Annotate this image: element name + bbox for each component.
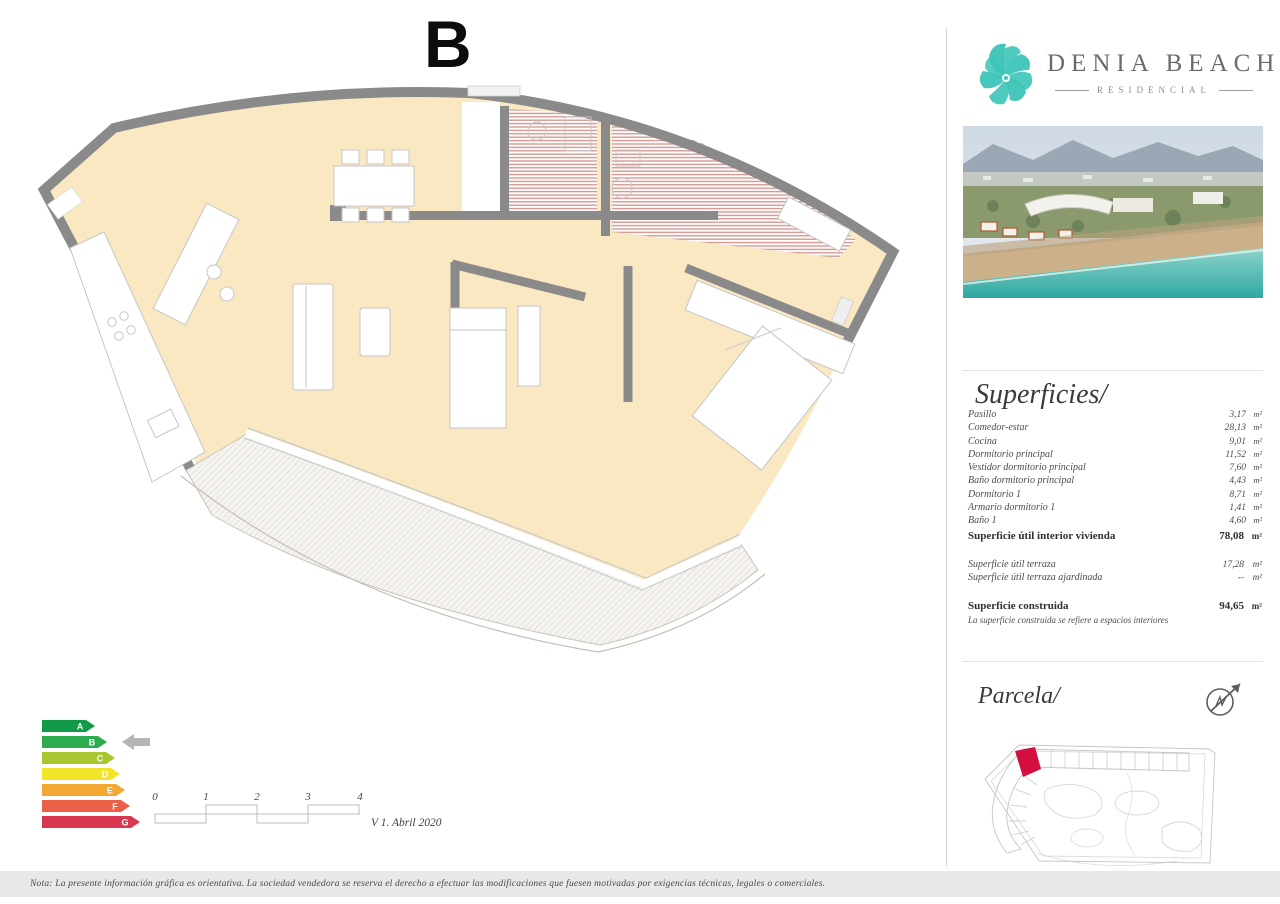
room-area: 11,52	[1212, 450, 1246, 460]
area-unit: m²	[1246, 462, 1262, 472]
north-arrow-icon	[1200, 676, 1248, 722]
section-rule	[962, 661, 1263, 662]
footer-note: Nota: La presente información gráfica es…	[30, 879, 825, 889]
room-area: 3,17	[1212, 410, 1246, 420]
dining-chair	[392, 208, 409, 222]
area-unit: m²	[1246, 489, 1262, 499]
area-totals: Superficie útil interior vivienda 78,08 …	[968, 530, 1262, 625]
room-area: 1,41	[1212, 503, 1246, 513]
room-area: 8,71	[1212, 490, 1246, 500]
grade-letter: C	[97, 754, 104, 764]
total-label: Superficie útil terraza ajardinada	[968, 572, 1204, 583]
room-label: Baño dormitorio principal	[968, 475, 1212, 486]
list-item: Dormitorio 18,71m²	[968, 489, 1262, 502]
scale-tick: 3	[304, 791, 311, 803]
superficies-heading: Superficies/	[975, 379, 1107, 411]
room-area: 7,60	[1212, 463, 1246, 473]
list-item: Cocina9,01m²	[968, 436, 1262, 449]
tagline-rule-left	[1055, 90, 1089, 91]
list-item: Vestidor dormitorio principal7,60m²	[968, 462, 1262, 475]
section-rule	[962, 370, 1263, 371]
area-unit: m²	[1244, 559, 1262, 569]
list-item: Baño 14,60m²	[968, 515, 1262, 528]
bed-2	[450, 308, 506, 428]
energy-grade-bars	[42, 720, 140, 828]
area-unit: m²	[1244, 572, 1262, 582]
scale-tick: 4	[357, 791, 363, 803]
grade-letter: E	[107, 786, 113, 796]
room-area: 4,43	[1212, 476, 1246, 486]
dining-chair	[392, 150, 409, 164]
dining-chair	[367, 208, 384, 222]
room-areas-list: Pasillo3,17m² Comedor-estar28,13m² Cocin…	[968, 409, 1262, 529]
brand-tagline: RESIDENCIAL	[1097, 85, 1211, 95]
list-item: Baño dormitorio principal4,43m²	[968, 475, 1262, 488]
total-construida-row: Superficie construida 94,65 m²	[968, 600, 1262, 612]
room-label: Dormitorio principal	[968, 449, 1212, 460]
area-unit: m²	[1244, 531, 1262, 541]
list-item: Dormitorio principal11,52m²	[968, 449, 1262, 462]
grade-letter: G	[121, 818, 128, 828]
sofa	[293, 284, 333, 390]
tagline-rule-right	[1219, 90, 1253, 91]
scale-tick: 2	[254, 791, 260, 803]
total-label: Superficie útil terraza	[968, 559, 1204, 570]
grade-letter: F	[112, 802, 118, 812]
floor-plan	[0, 0, 945, 680]
stool	[220, 287, 234, 301]
brand-header: DENIA BEACH RESIDENCIAL	[963, 36, 1265, 114]
area-unit: m²	[1246, 502, 1262, 512]
room-area: 28,13	[1212, 423, 1246, 433]
area-unit: m²	[1246, 436, 1262, 446]
list-item: Pasillo3,17m²	[968, 409, 1262, 422]
area-unit: m²	[1244, 601, 1262, 611]
panel-divider	[946, 28, 947, 866]
scale-bar	[155, 805, 360, 823]
total-label: Superficie útil interior vivienda	[968, 530, 1204, 542]
room-label: Dormitorio 1	[968, 489, 1212, 500]
total-value: 78,08	[1204, 530, 1244, 542]
room-label: Baño 1	[968, 515, 1212, 526]
dining-chair	[367, 150, 384, 164]
total-interior-row: Superficie útil interior vivienda 78,08 …	[968, 530, 1262, 542]
plan-version: V 1. Abril 2020	[371, 817, 442, 829]
construida-note: La superficie construida se refiere a es…	[968, 615, 1262, 625]
total-value: 94,65	[1204, 600, 1244, 612]
armchair	[360, 308, 390, 356]
scale-tick: 1	[203, 791, 209, 803]
footer-disclaimer-bar: Nota: La presente información gráfica es…	[0, 871, 1280, 897]
grade-letter: D	[102, 770, 109, 780]
total-ajardinada-row: Superficie útil terraza ajardinada -- m²	[968, 572, 1262, 583]
dining-chair	[342, 208, 359, 222]
list-item: Comedor-estar28,13m²	[968, 422, 1262, 435]
room-label: Cocina	[968, 436, 1212, 447]
scale-tick: 0	[152, 791, 158, 803]
total-label: Superficie construida	[968, 600, 1204, 612]
list-item: Armario dormitorio 11,41m²	[968, 502, 1262, 515]
room-label: Comedor-estar	[968, 422, 1212, 433]
grade-letter: B	[89, 738, 96, 748]
total-value: 17,28	[1204, 560, 1244, 570]
dining-table	[334, 166, 414, 206]
room-label: Armario dormitorio 1	[968, 502, 1212, 513]
selected-grade-pointer	[122, 734, 150, 750]
parcela-heading: Parcela/	[978, 683, 1060, 710]
area-unit: m²	[1246, 422, 1262, 432]
vestidor-room	[462, 102, 500, 212]
dining-chair	[342, 150, 359, 164]
grade-letter: A	[77, 722, 84, 732]
bath-principal-room	[507, 109, 597, 212]
total-terraza-row: Superficie útil terraza 17,28 m²	[968, 559, 1262, 570]
total-value: --	[1204, 573, 1244, 583]
aerial-photo	[963, 126, 1263, 298]
room-label: Pasillo	[968, 409, 1212, 420]
area-unit: m²	[1246, 449, 1262, 459]
area-unit: m²	[1246, 409, 1262, 419]
room-label: Vestidor dormitorio principal	[968, 462, 1212, 473]
room-area: 4,60	[1212, 516, 1246, 526]
shell-logo-icon	[971, 38, 1041, 112]
area-unit: m²	[1246, 475, 1262, 485]
room-area: 9,01	[1212, 437, 1246, 447]
area-unit: m²	[1246, 515, 1262, 525]
brand-name: DENIA BEACH	[1047, 50, 1261, 78]
parcela-site-plan	[977, 733, 1267, 885]
stool	[207, 265, 221, 279]
wardrobe-2	[518, 306, 540, 386]
